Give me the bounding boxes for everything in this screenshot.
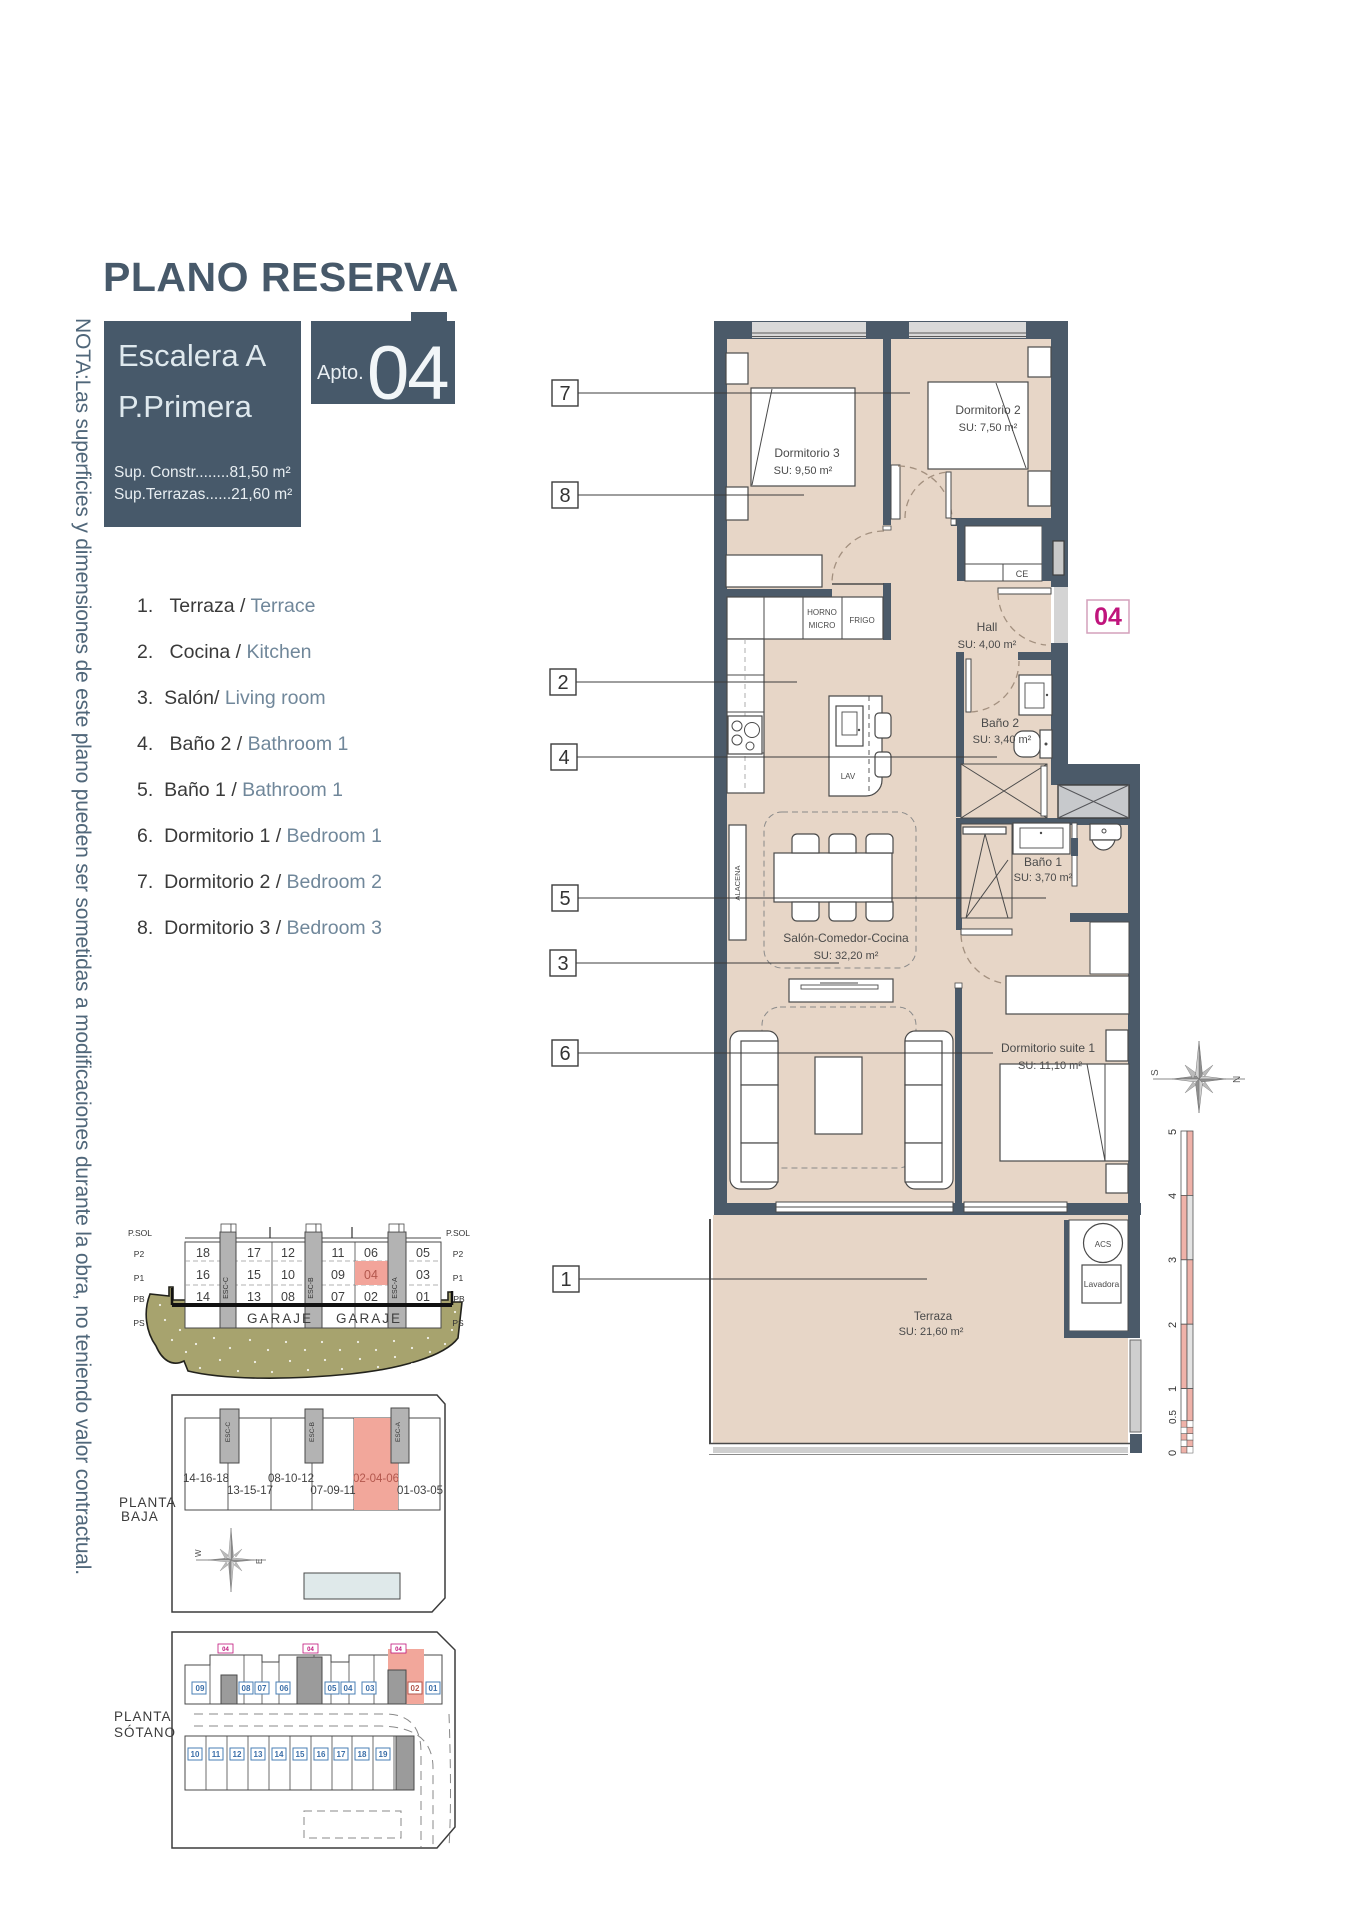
svg-text:P2: P2	[453, 1249, 464, 1259]
svg-text:PB: PB	[453, 1294, 465, 1304]
svg-text:0.5: 0.5	[1168, 1410, 1179, 1424]
svg-text:SU: 32,20 m²: SU: 32,20 m²	[814, 950, 879, 962]
svg-text:15: 15	[296, 1750, 305, 1759]
svg-text:Dormitorio 3: Dormitorio 3	[774, 446, 840, 460]
svg-text:04: 04	[364, 1268, 378, 1282]
svg-text:19: 19	[379, 1750, 388, 1759]
svg-text:05: 05	[328, 1684, 337, 1693]
svg-text:5: 5	[1167, 1129, 1179, 1135]
svg-text:13-15-17: 13-15-17	[227, 1485, 273, 1497]
svg-text:Hall: Hall	[977, 620, 998, 634]
svg-text:2: 2	[1167, 1322, 1179, 1328]
svg-text:ESC-A: ESC-A	[392, 1277, 399, 1299]
svg-text:GARAJE: GARAJE	[336, 1311, 402, 1326]
svg-text:18: 18	[196, 1246, 210, 1260]
svg-text:5: 5	[559, 888, 570, 910]
svg-text:BAJA: BAJA	[121, 1509, 159, 1524]
svg-text:Baño 2: Baño 2	[981, 716, 1019, 730]
svg-text:15: 15	[247, 1268, 261, 1282]
svg-text:04: 04	[344, 1684, 353, 1693]
svg-text:14: 14	[275, 1750, 284, 1759]
svg-text:CE: CE	[1016, 569, 1029, 579]
svg-text:PLANTA: PLANTA	[114, 1709, 172, 1724]
svg-text:12: 12	[233, 1750, 242, 1759]
svg-text:07: 07	[258, 1684, 267, 1693]
svg-text:09: 09	[196, 1684, 205, 1693]
svg-text:01: 01	[416, 1290, 430, 1304]
svg-text:0: 0	[1167, 1450, 1179, 1456]
svg-text:04: 04	[395, 1647, 402, 1653]
svg-text:07-09-11: 07-09-11	[310, 1485, 355, 1497]
svg-text:ESC-C: ESC-C	[223, 1277, 230, 1299]
svg-text:PS: PS	[133, 1318, 145, 1328]
svg-text:1: 1	[560, 1269, 571, 1291]
svg-text:SU: 9,50 m²: SU: 9,50 m²	[774, 465, 833, 477]
svg-text:Dormitorio 2: Dormitorio 2	[955, 403, 1021, 417]
svg-text:SU: 4,00 m²: SU: 4,00 m²	[958, 639, 1017, 651]
svg-text:17: 17	[337, 1750, 346, 1759]
svg-text:SU: 3,70 m²: SU: 3,70 m²	[1014, 872, 1073, 884]
svg-text:3: 3	[1167, 1257, 1179, 1263]
svg-text:ESC-A: ESC-A	[395, 1421, 402, 1442]
svg-text:07: 07	[331, 1290, 345, 1304]
svg-text:05: 05	[416, 1246, 430, 1260]
svg-text:08-10-12: 08-10-12	[268, 1473, 314, 1485]
svg-text:P1: P1	[134, 1273, 145, 1283]
svg-text:02-04-06: 02-04-06	[353, 1473, 399, 1485]
svg-text:P.SOL: P.SOL	[128, 1228, 152, 1238]
svg-text:02: 02	[411, 1684, 420, 1693]
svg-text:04: 04	[222, 1647, 229, 1653]
svg-text:14-16-18: 14-16-18	[183, 1473, 229, 1485]
svg-text:Lavadora: Lavadora	[1084, 1279, 1120, 1289]
svg-text:SU: 3,40 m²: SU: 3,40 m²	[973, 734, 1032, 746]
svg-text:04: 04	[1094, 603, 1122, 631]
svg-text:ESC-C: ESC-C	[225, 1422, 232, 1443]
svg-text:S: S	[1150, 1069, 1161, 1076]
svg-text:HORNO: HORNO	[807, 608, 837, 617]
svg-text:Salón-Comedor-Cocina: Salón-Comedor-Cocina	[783, 931, 909, 945]
svg-text:ACS: ACS	[1095, 1240, 1111, 1249]
svg-text:1: 1	[1167, 1386, 1179, 1392]
svg-text:4: 4	[1167, 1193, 1179, 1199]
svg-text:ALACENA: ALACENA	[733, 865, 742, 900]
svg-text:ESC-B: ESC-B	[308, 1277, 315, 1299]
svg-text:SU: 11,10 m²: SU: 11,10 m²	[1018, 1060, 1082, 1072]
svg-text:SÓTANO: SÓTANO	[114, 1725, 176, 1740]
svg-text:12: 12	[281, 1246, 295, 1260]
svg-text:7: 7	[559, 383, 570, 405]
svg-text:E: E	[255, 1559, 264, 1564]
svg-text:2: 2	[557, 672, 568, 694]
svg-text:18: 18	[358, 1750, 367, 1759]
svg-text:Dormitorio suite 1: Dormitorio suite 1	[1001, 1041, 1095, 1055]
svg-text:GARAJE: GARAJE	[247, 1311, 313, 1326]
svg-text:09: 09	[331, 1268, 345, 1282]
svg-text:10: 10	[281, 1268, 295, 1282]
svg-text:SU: 7,50 m²: SU: 7,50 m²	[959, 422, 1018, 434]
svg-text:02: 02	[364, 1290, 378, 1304]
svg-text:14: 14	[196, 1290, 210, 1304]
svg-text:PS: PS	[452, 1318, 464, 1328]
svg-text:13: 13	[247, 1290, 261, 1304]
svg-text:13: 13	[254, 1750, 263, 1759]
svg-text:11: 11	[212, 1750, 221, 1759]
svg-text:3: 3	[557, 953, 568, 975]
svg-text:FRIGO: FRIGO	[849, 616, 874, 625]
svg-text:P.SOL: P.SOL	[446, 1228, 470, 1238]
svg-text:16: 16	[196, 1268, 210, 1282]
svg-text:ESC-B: ESC-B	[309, 1422, 316, 1442]
svg-text:4: 4	[558, 747, 569, 769]
svg-text:03: 03	[416, 1268, 430, 1282]
svg-text:03: 03	[366, 1684, 375, 1693]
svg-text:16: 16	[317, 1750, 326, 1759]
svg-text:Terraza: Terraza	[914, 1311, 953, 1323]
svg-text:P2: P2	[134, 1249, 145, 1259]
svg-text:01: 01	[429, 1684, 438, 1693]
svg-text:8: 8	[559, 485, 570, 507]
svg-text:08: 08	[281, 1290, 295, 1304]
svg-text:04: 04	[307, 1647, 314, 1653]
svg-text:P1: P1	[453, 1273, 464, 1283]
svg-text:10: 10	[191, 1750, 200, 1759]
svg-text:PB: PB	[133, 1294, 145, 1304]
svg-text:N: N	[1232, 1076, 1243, 1083]
svg-text:06: 06	[280, 1684, 289, 1693]
svg-text:6: 6	[559, 1043, 570, 1065]
svg-text:08: 08	[242, 1684, 251, 1693]
svg-text:06: 06	[364, 1246, 378, 1260]
svg-text:W: W	[194, 1549, 203, 1557]
svg-text:MICRO: MICRO	[809, 621, 836, 630]
svg-text:LAV: LAV	[841, 772, 856, 781]
svg-text:SU: 21,60 m²: SU: 21,60 m²	[899, 1326, 964, 1338]
svg-text:01-03-05: 01-03-05	[397, 1485, 443, 1497]
svg-text:PLANTA: PLANTA	[119, 1495, 177, 1510]
svg-text:17: 17	[247, 1246, 261, 1260]
svg-text:11: 11	[332, 1246, 345, 1260]
svg-text:Baño 1: Baño 1	[1024, 855, 1062, 869]
